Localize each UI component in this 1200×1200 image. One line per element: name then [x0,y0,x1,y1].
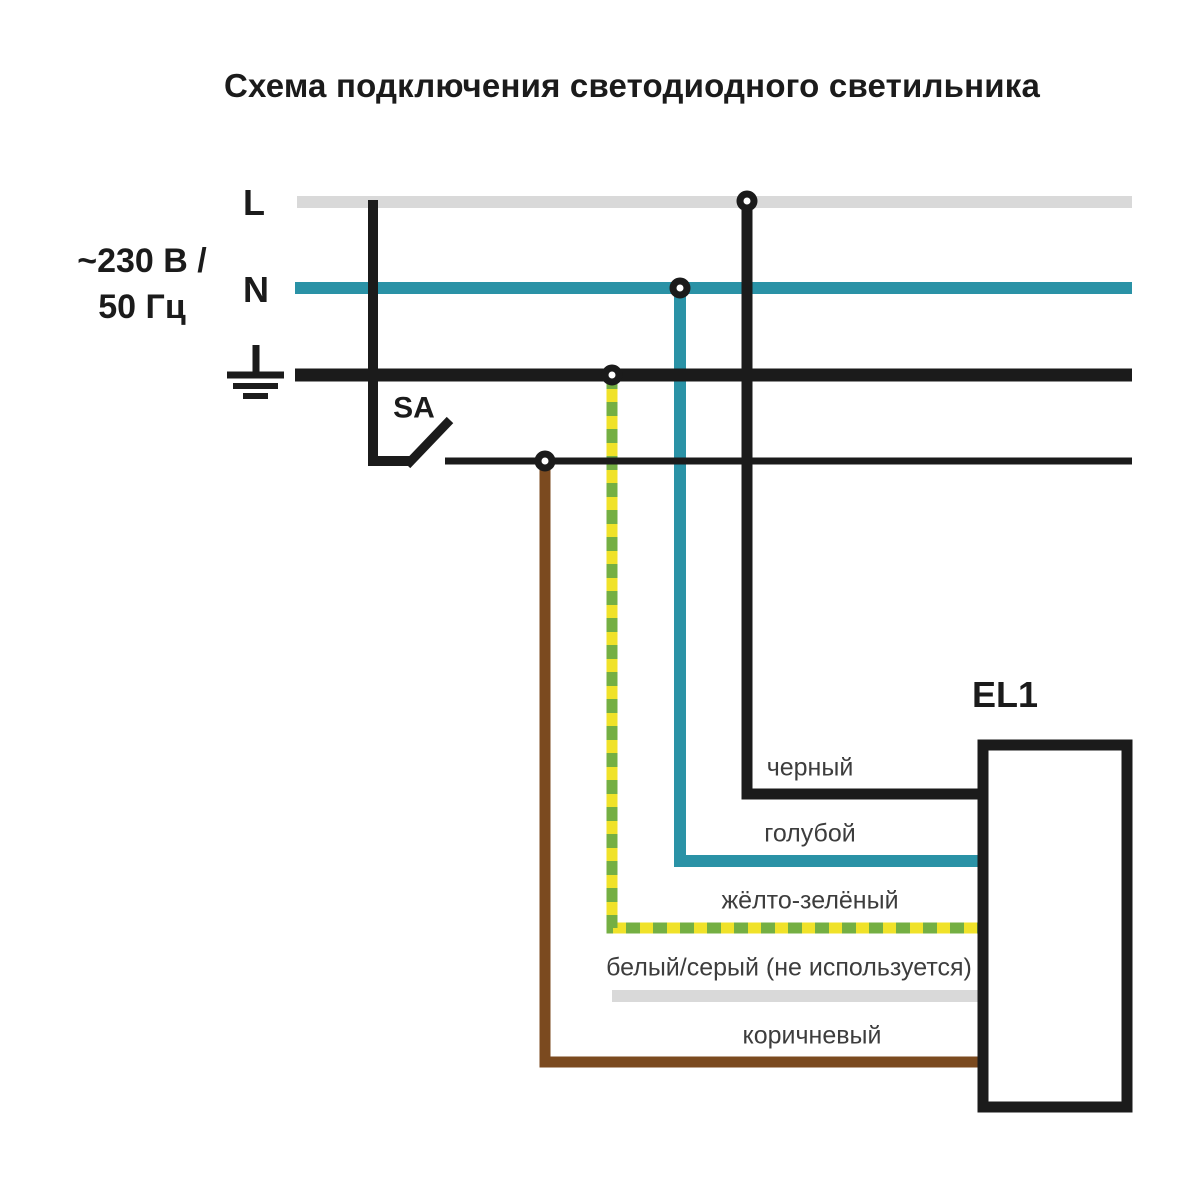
luminaire-box [983,745,1127,1107]
junction-dot-switched [538,454,552,468]
frequency-line: 50 Гц [77,285,206,331]
junction-dot-l [740,194,754,208]
wire-label-blue: голубой [764,820,855,848]
wiring-diagram: Схема подключения светодиодного светильн… [0,0,1200,1200]
switch-label: SA [393,392,435,425]
junction-dot-n [673,281,687,295]
line-n-label: N [243,270,269,310]
voltage-label: ~230 В / 50 Гц [77,239,206,331]
wire-label-yellow-green: жёлто-зелёный [721,887,898,915]
wire-label-white-gray: белый/серый (не используется) [606,954,972,982]
ground-icon [227,345,284,396]
voltage-line: ~230 В / [77,239,206,285]
switch-blade [407,420,450,465]
wire-label-brown: коричневый [743,1022,882,1050]
wire-label-black: черный [767,754,854,782]
schematic-canvas [0,0,1200,1200]
page-title: Схема подключения светодиодного светильн… [224,68,1040,104]
luminaire-label: EL1 [972,675,1038,715]
line-l-label: L [243,183,265,223]
junction-dot-pe [605,368,619,382]
